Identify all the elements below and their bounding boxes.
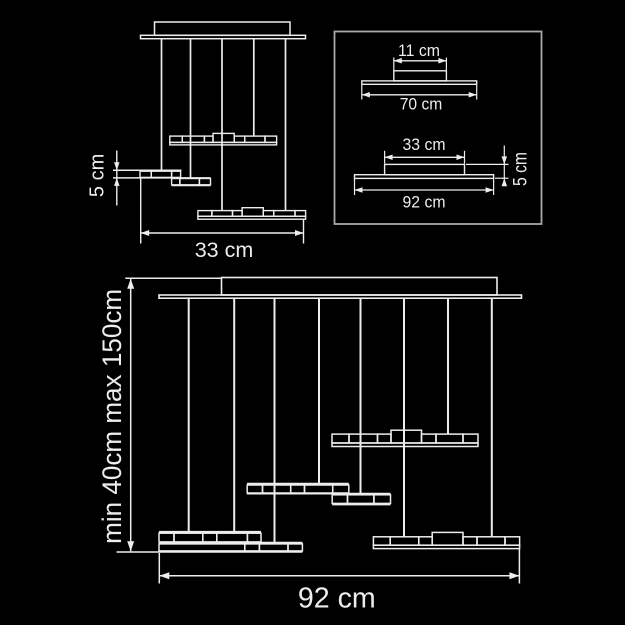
svg-text:11 cm: 11 cm: [398, 41, 440, 60]
svg-text:92 cm: 92 cm: [298, 583, 376, 615]
svg-text:70 cm: 70 cm: [400, 94, 443, 113]
svg-text:33 cm: 33 cm: [195, 238, 254, 262]
svg-text:33 cm: 33 cm: [403, 135, 446, 154]
svg-text:min 40cm max 150cm: min 40cm max 150cm: [97, 289, 127, 544]
svg-text:92 cm: 92 cm: [403, 192, 446, 211]
svg-text:5 cm: 5 cm: [511, 152, 532, 186]
svg-text:5 cm: 5 cm: [87, 154, 109, 197]
